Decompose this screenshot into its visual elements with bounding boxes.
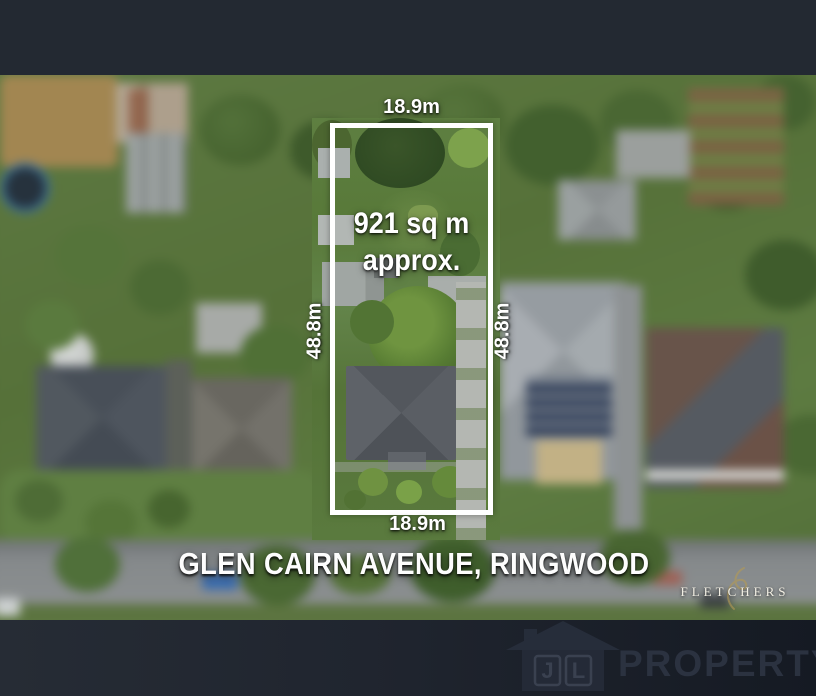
car-white — [0, 598, 20, 616]
street-address: GLEN CAIRN AVENUE, RINGWOOD — [62, 546, 766, 582]
rust-streak — [128, 89, 148, 135]
neighbor-house-roof-far-right — [646, 328, 784, 488]
watermark-monogram-l: L — [572, 658, 585, 683]
land-area-approx: approx. — [338, 242, 485, 279]
gutter-line — [646, 470, 784, 480]
land-area-label: 921 sq m approx. — [338, 205, 485, 279]
property-boundary-outline — [330, 123, 493, 515]
garden-bush — [148, 490, 190, 528]
property-marketing-image: 18.9m 18.9m 48.8m 48.8m 921 sq m approx.… — [0, 0, 816, 696]
watermark-wordmark: PROPERTY — [618, 643, 816, 685]
vegetable-garden-beds — [688, 87, 784, 205]
top-letterbox-bar — [0, 0, 816, 75]
neighbor-roof — [558, 180, 636, 240]
tree — [200, 95, 280, 165]
frontage-dimension-bottom: 18.9m — [330, 513, 505, 536]
agency-logo: FLETCHERS — [655, 584, 815, 600]
watermark-house-icon: J L — [504, 621, 622, 693]
yellow-wall — [536, 440, 602, 484]
shed-roof — [616, 130, 690, 178]
dirt-patch — [0, 75, 118, 167]
tree — [505, 105, 600, 185]
nature-strip — [0, 604, 816, 620]
solar-panels — [526, 378, 612, 436]
trampoline — [0, 163, 50, 213]
shed-roof-panels — [126, 133, 186, 213]
neighbor-house-roof-left-2 — [190, 378, 292, 480]
driveway — [614, 285, 642, 530]
garden-bush — [25, 300, 80, 350]
garden-bush — [15, 480, 63, 522]
neighbor-house-roof-left-1 — [36, 366, 168, 470]
garden-bush — [55, 225, 125, 285]
tree — [745, 240, 816, 310]
frontage-dimension-top: 18.9m — [330, 96, 493, 119]
garden-bush — [130, 260, 190, 315]
depth-dimension-left: 48.8m — [304, 303, 327, 360]
watermark-monogram-j: J — [541, 658, 553, 683]
garden-bush — [240, 325, 310, 385]
land-area-value: 921 sq m — [338, 205, 485, 242]
depth-dimension-right: 48.8m — [492, 303, 515, 360]
